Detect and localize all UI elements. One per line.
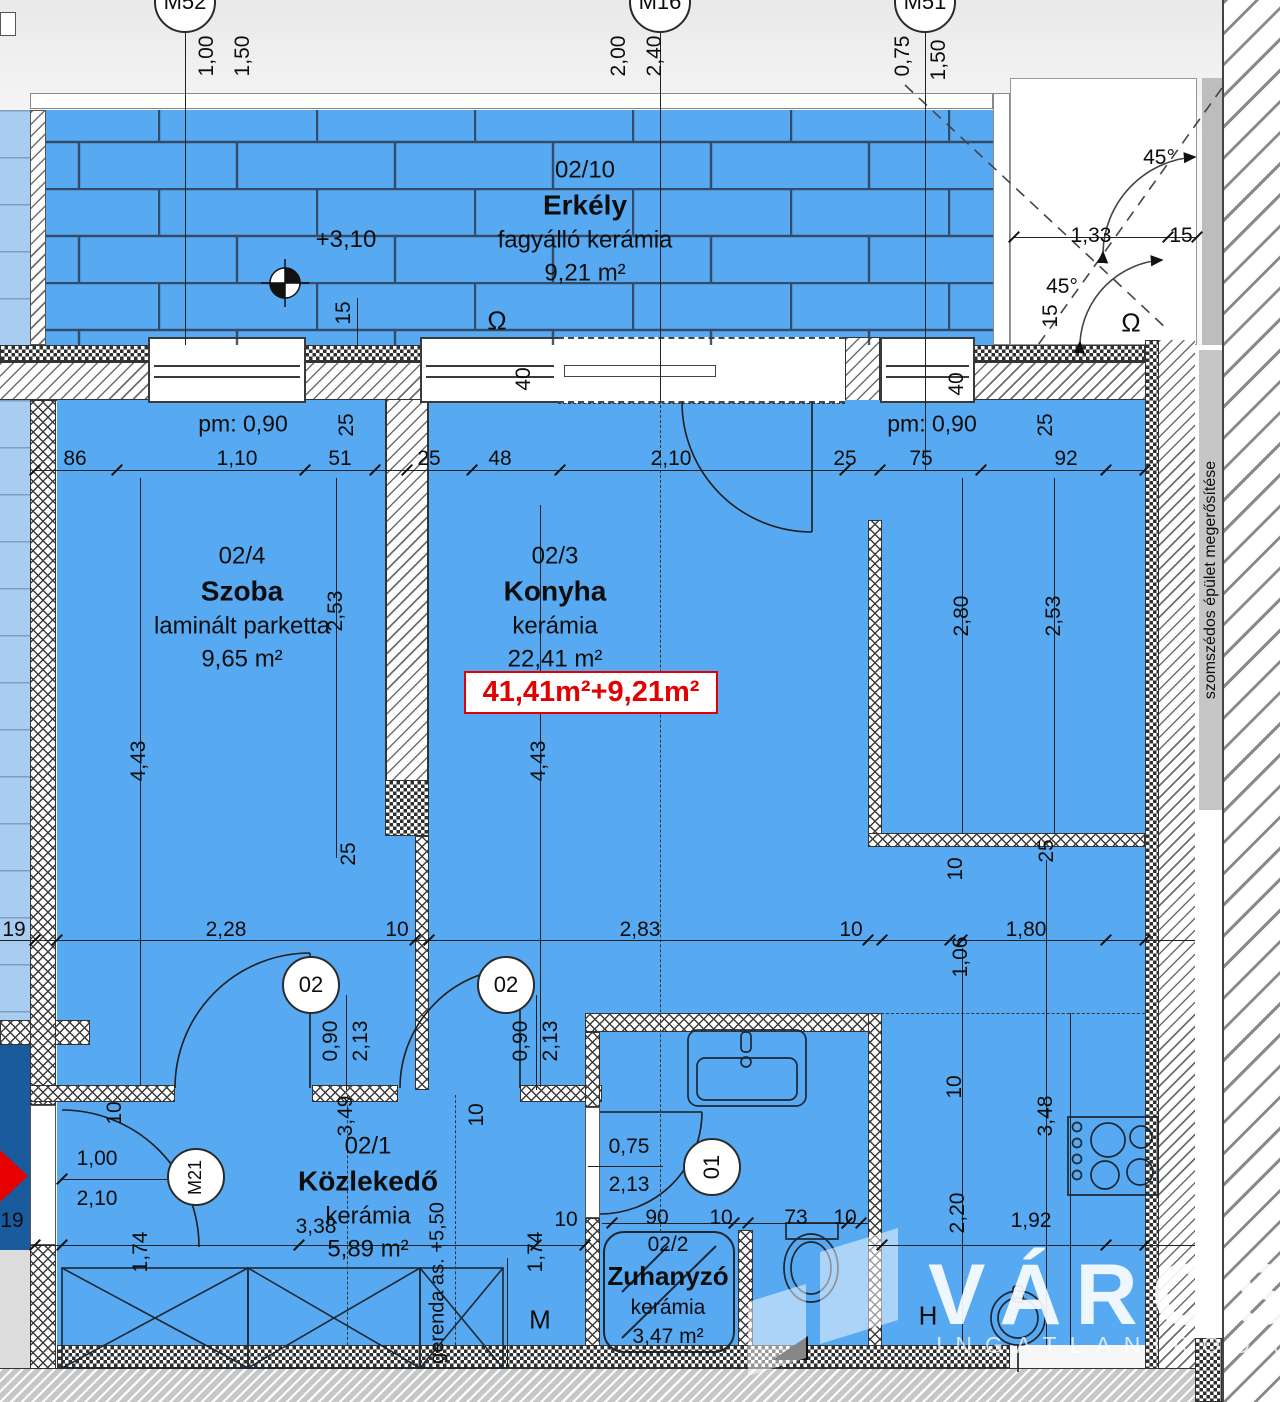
room-name: Közlekedő — [298, 1163, 438, 1201]
vent-symbol-1: Ω — [487, 306, 506, 337]
dim-label: 10 — [833, 1206, 856, 1230]
room-id: 02/10 — [555, 155, 615, 187]
dim-label: 90 — [645, 1206, 668, 1230]
room-name: Erkély — [543, 187, 627, 225]
room-label-erkely: 02/10 Erkély fagyálló kerámia 9,21 m² — [498, 155, 673, 290]
dim-label: 15 — [1169, 224, 1192, 248]
total-area-value: 41,41m²+9,21m² — [483, 676, 700, 709]
balcony-level: +3,10 — [316, 226, 377, 254]
entry-door-opening — [30, 1105, 56, 1245]
partition-pier — [385, 780, 429, 836]
vent-symbol-2: Ω — [1121, 308, 1140, 339]
window-pillar — [845, 337, 880, 403]
axis-line — [925, 30, 926, 470]
dim-label: 10 — [943, 1075, 967, 1098]
dim-label: 25 — [1035, 839, 1059, 862]
dim-label: 1,00 — [195, 36, 219, 77]
dim-label: 0,75 — [891, 36, 915, 77]
left-wall-upper — [30, 400, 56, 1105]
dim-label: 2,13 — [609, 1173, 650, 1197]
dim-label: 15 — [1039, 304, 1063, 327]
axis-label: M51 — [904, 0, 947, 15]
dim-label: 1,50 — [927, 40, 951, 81]
axis-line — [185, 30, 186, 345]
dim-label: 45° — [1143, 146, 1175, 170]
room-name: Konyha — [504, 573, 607, 611]
door-tag-label: 01 — [699, 1155, 725, 1179]
window-szoba — [148, 337, 306, 403]
balcony-divider-wall — [30, 110, 46, 345]
dim-label: 3,48 — [1034, 1096, 1058, 1137]
watermark-subtitle: INGATLANIRODA — [936, 1332, 1280, 1359]
sliding-door-leaf — [564, 365, 716, 377]
dim-label: 3,38 — [296, 1215, 337, 1239]
door-tag-label: 02 — [494, 972, 518, 998]
door-tag-konyha: 02 — [477, 956, 535, 1014]
dim-label: 0,90 — [319, 1021, 343, 1062]
dim-label: 48 — [488, 447, 511, 471]
bath-door-opening — [585, 1107, 600, 1218]
dim-label: 10 — [554, 1208, 577, 1232]
bath-left-wall-upper — [585, 1032, 600, 1107]
room-id: 02/2 — [648, 1231, 689, 1259]
dim-label: 1,33 — [1071, 224, 1112, 248]
dim-label: 2,10 — [651, 447, 692, 471]
axis-marker-m51: M51 — [894, 0, 956, 33]
bottom-wall — [0, 1368, 1195, 1402]
axis-label: M52 — [164, 0, 207, 15]
dim-label: 45° — [1046, 275, 1078, 299]
parapet-note-right: pm: 0,90 — [887, 411, 977, 438]
door-tag-label: 02 — [299, 972, 323, 998]
dim-label: 19 — [2, 918, 25, 942]
axis-line — [1054, 478, 1055, 834]
dim-label: 25 — [337, 842, 361, 865]
dim-label: 10 — [944, 857, 968, 880]
dim-label: 2,83 — [620, 918, 661, 942]
axis-marker-m52: M52 — [154, 0, 216, 33]
dim-line — [588, 1166, 663, 1167]
dim-label: 75 — [909, 447, 932, 471]
door-tag-entry: M21 — [167, 1148, 225, 1206]
room-id: 02/3 — [532, 541, 579, 573]
room-label-zuhanyzo: 02/2 Zuhanyzó kerámia 3,47 m² — [607, 1231, 728, 1351]
dim-label: 1,92 — [1011, 1209, 1052, 1233]
dim-label: 10 — [103, 1101, 127, 1124]
dim-label: 2,80 — [950, 596, 974, 637]
parapet-top-strip — [30, 93, 993, 109]
dim-label: 0,90 — [509, 1021, 533, 1062]
dim-label: 2,53 — [324, 591, 348, 632]
dashed-line — [558, 403, 845, 404]
dashed-axis — [660, 400, 661, 1232]
axis-line — [536, 995, 537, 1090]
dim-label: 10 — [465, 1103, 489, 1126]
dim-label: 10 — [385, 918, 408, 942]
dim-label: 2,28 — [206, 918, 247, 942]
dim-label: 40 — [945, 372, 969, 395]
axis-line — [962, 478, 963, 834]
dim-label: 2,53 — [1042, 596, 1066, 637]
room-area: 3,47 m² — [632, 1323, 703, 1351]
door-tag-label: M21 — [185, 1159, 206, 1194]
neighbor-note: szomszédos épület megerősítése — [1202, 461, 1220, 699]
dim-label: 19 — [0, 1209, 23, 1233]
axis-line — [336, 478, 337, 858]
partition-room-right-v — [868, 520, 882, 847]
dim-label: 25 — [1034, 413, 1058, 436]
dim-label: 73 — [784, 1206, 807, 1230]
adjacent-balcony — [0, 110, 30, 345]
window-szoba-corner — [420, 337, 560, 403]
watermark-title: VÁROSI — [928, 1246, 1280, 1345]
neighbor-gray-bar — [1202, 78, 1222, 345]
dim-label: 1,74 — [524, 1232, 548, 1273]
dim-label: 1,50 — [231, 36, 255, 77]
dim-label: 0,75 — [609, 1135, 650, 1159]
room-finish: kerámia — [325, 1201, 410, 1233]
dim-label: 2,13 — [539, 1021, 563, 1062]
dim-label: 4,43 — [127, 741, 151, 782]
partition-room-right-h — [868, 833, 1145, 847]
room-name: Szoba — [201, 573, 283, 611]
room-finish: kerámia — [512, 611, 597, 643]
bottom-wall-insulation — [57, 1345, 1010, 1368]
top-left-box — [0, 12, 16, 36]
axis-line — [346, 995, 347, 1090]
partition-szoba-thin — [415, 836, 429, 1090]
dim-label: 10 — [839, 918, 862, 942]
neighbor-building-hatch — [1222, 0, 1280, 1402]
room-label-kozlekedo: 02/1 Közlekedő kerámia 5,89 m² — [298, 1131, 438, 1266]
room-label-szoba: 02/4 Szoba laminált parketta 9,65 m² — [154, 541, 330, 676]
dim-label: 86 — [63, 447, 86, 471]
beam-note: gerenda as. +5,50 — [427, 1202, 450, 1364]
dim-label: 1,00 — [77, 1147, 118, 1171]
dim-label: 2,40 — [643, 36, 667, 77]
room-id: 02/4 — [219, 541, 266, 573]
dim-label: 92 — [1054, 447, 1077, 471]
axis-line — [357, 298, 358, 345]
room-finish: kerámia — [631, 1294, 706, 1322]
dim-label: 1,74 — [129, 1232, 153, 1273]
dim-label: 51 — [328, 447, 351, 471]
floor-plan: M52 M16 M51 02 02 01 M21 02/10 Erkély fa… — [0, 0, 1280, 1402]
south-wall-szoba-1 — [30, 1085, 175, 1102]
dim-label: 2,20 — [946, 1193, 970, 1234]
dim-label: 40 — [512, 367, 536, 390]
dim-label: 1,80 — [1006, 918, 1047, 942]
dim-label: 2,10 — [77, 1187, 118, 1211]
dim-label: 25 — [833, 447, 856, 471]
bath-right-wall — [868, 1013, 882, 1370]
axis-line — [507, 1258, 508, 1368]
dim-label: 10 — [709, 1206, 732, 1230]
bath-top-wall — [585, 1013, 882, 1032]
dim-label: 25 — [335, 413, 359, 436]
dashed-axis — [455, 1095, 456, 1345]
parapet-note-left: pm: 0,90 — [198, 411, 288, 438]
entrance-arrow-icon — [0, 1150, 28, 1202]
axis-marker-m16: M16 — [629, 0, 691, 33]
dim-label: 1,10 — [217, 447, 258, 471]
room-area: 9,21 m² — [544, 257, 625, 289]
dim-label: 1,06 — [949, 937, 973, 978]
terrace-door-opening — [558, 337, 845, 403]
room-label-konyha: 02/3 Konyha kerámia 22,41 m² — [504, 541, 607, 676]
room-area: 9,65 m² — [201, 643, 282, 675]
axis-line — [140, 478, 141, 1086]
total-area-box: 41,41m²+9,21m² — [464, 671, 718, 714]
dim-label: 25 — [417, 447, 440, 471]
balcony-parapet-right — [993, 93, 1010, 345]
room-finish: fagyálló kerámia — [498, 225, 673, 257]
dim-label: 4,43 — [527, 741, 551, 782]
door-tag-szoba: 02 — [282, 956, 340, 1014]
door-tag-bath: 01 — [683, 1138, 741, 1196]
axis-label: M16 — [639, 0, 682, 15]
room-finish: laminált parketta — [154, 611, 330, 643]
room-name: Zuhanyzó — [607, 1259, 728, 1294]
room-area: 5,89 m² — [327, 1233, 408, 1265]
dim-label: 3,49 — [334, 1096, 358, 1137]
dim-label: 2,13 — [349, 1021, 373, 1062]
dim-label: 15 — [332, 301, 356, 324]
washer-mark: M — [529, 1305, 551, 1336]
dim-label: 2,00 — [607, 36, 631, 77]
window-glass — [154, 365, 300, 378]
